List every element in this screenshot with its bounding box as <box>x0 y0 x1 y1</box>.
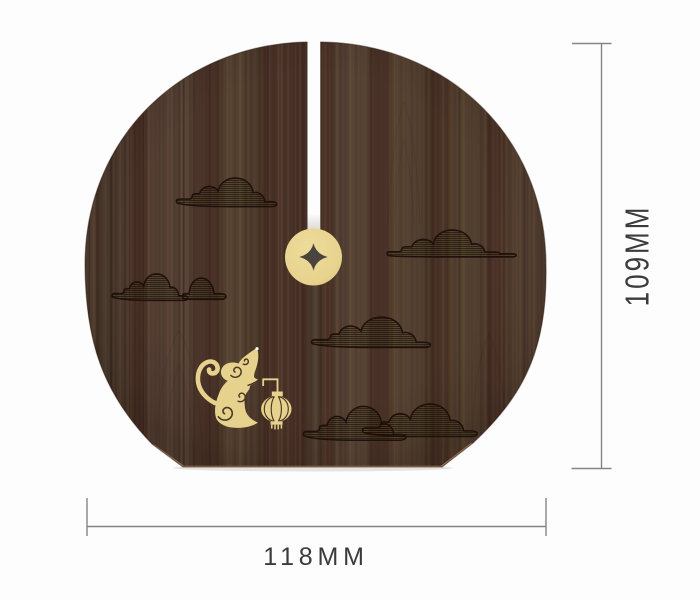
svg-text:118MM: 118MM <box>263 543 369 571</box>
svg-text:109MM: 109MM <box>620 205 657 307</box>
